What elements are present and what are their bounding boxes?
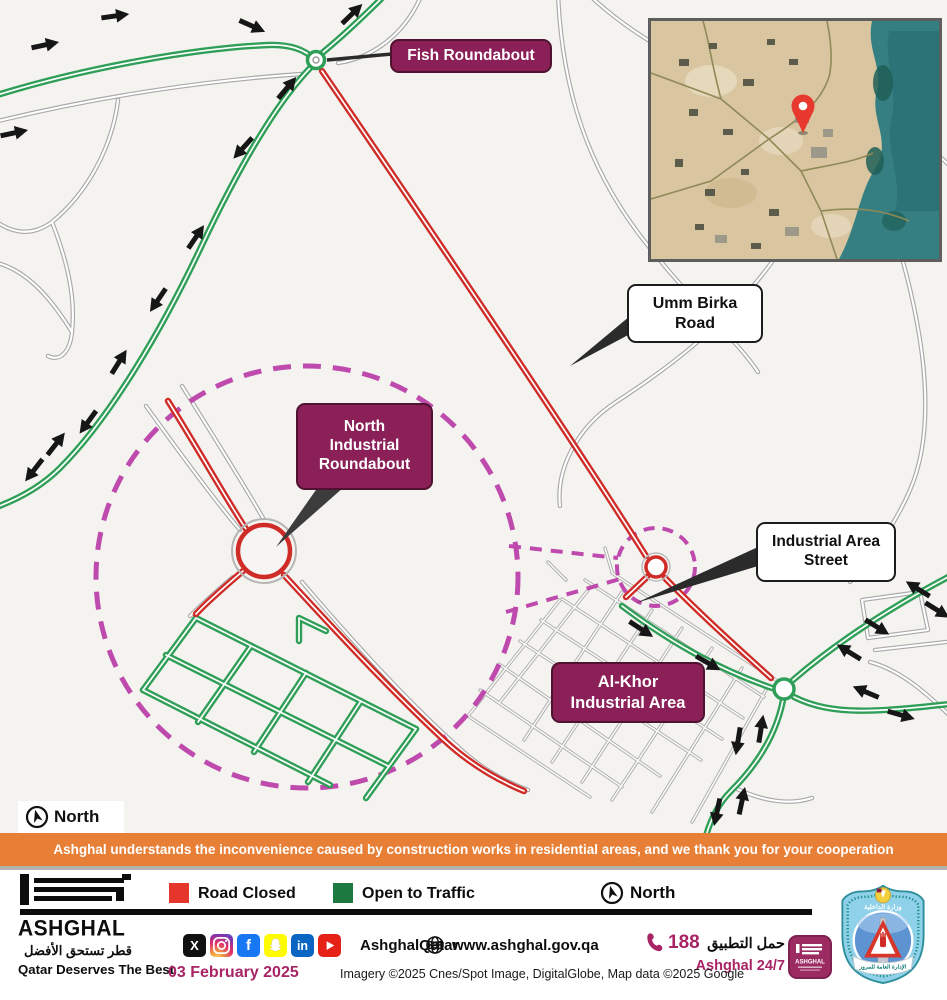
legend-label-road-closed: Road Closed — [198, 885, 296, 903]
label-text: Umm Birka Road — [637, 294, 753, 333]
satellite-imagery — [651, 21, 939, 259]
label-fish-roundabout: Fish Roundabout — [390, 39, 552, 73]
compass-icon — [25, 805, 49, 829]
website-link[interactable]: www.ashghal.gov.qa — [452, 937, 599, 954]
label-text: Fish Roundabout — [407, 47, 534, 66]
north-label: North — [630, 883, 675, 903]
footer-rule — [20, 909, 812, 915]
notice-date: 03 February 2025 — [168, 964, 299, 982]
emblem-directorate-text: الإدارة العامة للمرور — [859, 963, 907, 970]
youtube-icon[interactable] — [318, 934, 341, 957]
label-text: Industrial Area Street — [766, 533, 886, 571]
road-closure-notice: Fish Roundabout Umm Birka Road North Ind… — [0, 0, 947, 1000]
app-label-arabic: حمل التطبيق — [690, 936, 785, 952]
x-glyph: X — [190, 938, 199, 953]
snapchat-icon[interactable] — [264, 934, 287, 957]
footer: ASHGHAL قطر تستحق الأفضل Qatar Deserves … — [0, 870, 947, 1000]
label-text: North Industrial Roundabout — [308, 418, 421, 475]
map-north-indicator: North — [18, 801, 124, 833]
linkedin-glyph: in — [297, 939, 308, 953]
x-twitter-icon[interactable]: X — [183, 934, 206, 957]
globe-icon — [425, 935, 445, 955]
app-icon-brand: ASHGHAL — [795, 960, 825, 966]
compass-icon — [600, 881, 624, 905]
satellite-inset-map — [648, 18, 942, 262]
label-industrial-area-street: Industrial Area Street — [756, 522, 896, 582]
legend-label-open-to-traffic: Open to Traffic — [362, 885, 475, 903]
map-canvas: Fish Roundabout Umm Birka Road North Ind… — [0, 0, 947, 833]
label-al-khor-industrial-area: Al-Khor Industrial Area — [551, 662, 705, 723]
banner-text: Ashghal understands the inconvenience ca… — [53, 842, 893, 857]
facebook-glyph: f — [246, 937, 251, 954]
emblem-ministry-text: وزارة الداخلية — [864, 903, 902, 911]
north-label: North — [54, 807, 99, 827]
footer-north-indicator: North — [600, 881, 675, 905]
brand-tagline-arabic: قطر تستحق الأفضل — [18, 943, 138, 959]
label-umm-birka-road: Umm Birka Road — [627, 284, 763, 343]
phone-icon — [646, 933, 665, 952]
label-text: Al-Khor Industrial Area — [561, 672, 695, 712]
linkedin-icon[interactable]: in — [291, 934, 314, 957]
instagram-icon[interactable] — [210, 934, 233, 957]
ashghal-app-icon[interactable]: ASHGHAL — [788, 935, 832, 979]
ashghal-logo — [18, 874, 133, 911]
brand-tagline-english: Qatar Deserves The Best — [18, 962, 174, 977]
traffic-directorate-emblem: وزارة الداخلية الإدارة العامة للمرور — [835, 882, 931, 984]
facebook-icon[interactable]: f — [237, 934, 260, 957]
imagery-credit: Imagery ©2025 Cnes/Spot Image, DigitalGl… — [340, 967, 744, 981]
label-north-industrial-roundabout: North Industrial Roundabout — [296, 403, 433, 490]
legend-swatch-road-closed — [169, 883, 189, 903]
ashghal-calligraphy-icon — [18, 874, 133, 906]
brand-wordmark: ASHGHAL — [18, 916, 125, 941]
legend-swatch-open-to-traffic — [333, 883, 353, 903]
apology-banner: Ashghal understands the inconvenience ca… — [0, 833, 947, 866]
